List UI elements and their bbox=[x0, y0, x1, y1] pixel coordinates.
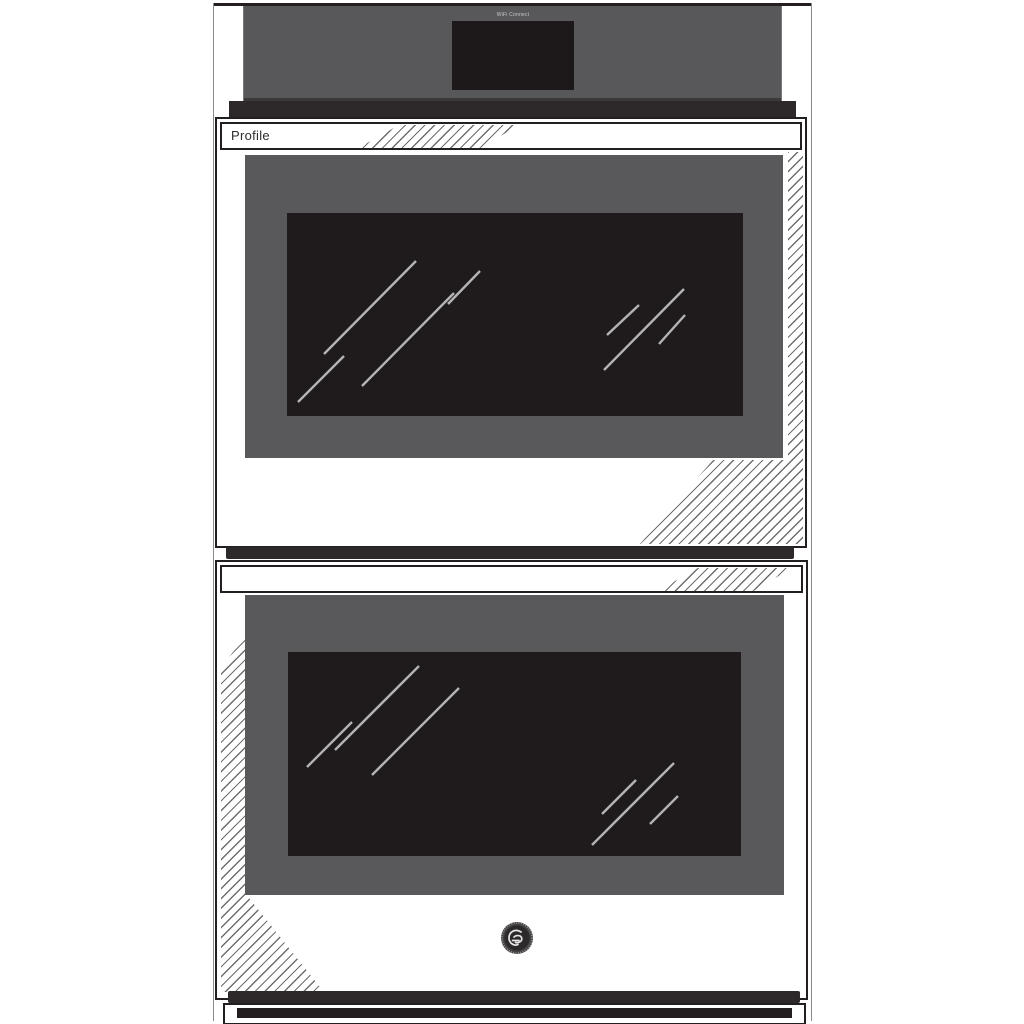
panel-shadow-strip bbox=[229, 101, 796, 117]
double-wall-oven: WiFi Connect Profile bbox=[213, 3, 812, 1021]
handle-highlight-hatch bbox=[222, 567, 801, 591]
upper-oven-door: Profile bbox=[215, 117, 807, 548]
left-side-trim bbox=[214, 6, 244, 101]
door-gap-strip bbox=[226, 547, 794, 559]
glass-reflection-lines bbox=[287, 213, 743, 416]
handle-highlight-hatch bbox=[222, 124, 800, 148]
upper-oven-window bbox=[287, 213, 743, 416]
control-panel: WiFi Connect bbox=[214, 3, 811, 101]
lower-oven-door bbox=[215, 560, 808, 1000]
ge-monogram-logo bbox=[500, 921, 534, 955]
lower-oven-window bbox=[288, 652, 741, 856]
profile-logo-text: Profile bbox=[231, 128, 270, 143]
touchscreen-display bbox=[452, 21, 574, 90]
lower-door-handle bbox=[220, 565, 803, 593]
glass-reflection-lines bbox=[288, 652, 741, 856]
wifi-connect-label: WiFi Connect bbox=[452, 12, 574, 19]
product-illustration: WiFi Connect Profile bbox=[0, 0, 1024, 1024]
door-bottom-strip bbox=[228, 991, 800, 1003]
kick-plate bbox=[223, 1003, 806, 1024]
control-panel-face: WiFi Connect bbox=[243, 6, 781, 99]
upper-door-handle: Profile bbox=[220, 122, 802, 150]
right-side-trim bbox=[781, 6, 811, 101]
kick-plate-vent-bar bbox=[237, 1008, 792, 1018]
